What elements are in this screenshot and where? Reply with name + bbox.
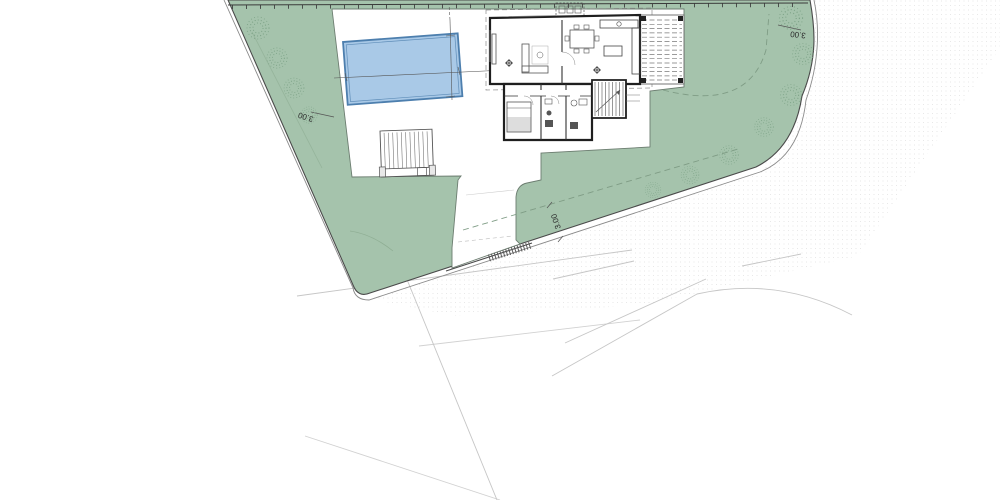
pergola-frame (640, 15, 684, 84)
toilet (545, 120, 553, 127)
pergola-post (678, 78, 683, 83)
site-plan-page: 3.00 3.00 3.00 (0, 0, 1000, 500)
pergola-post (641, 78, 646, 83)
site-plan-drawing: 3.00 3.00 3.00 (0, 0, 1000, 500)
carport-pier (379, 167, 385, 177)
pool-basin (343, 33, 462, 104)
pergola-post (641, 16, 646, 21)
setback-label-right: 3.00 (789, 29, 806, 40)
carport-pier (429, 165, 435, 175)
pergola (640, 15, 684, 84)
swimming-pool (343, 33, 462, 104)
toilet (547, 111, 552, 116)
toilet (570, 122, 578, 129)
carport-slats (378, 129, 436, 177)
pergola-post (678, 16, 683, 21)
